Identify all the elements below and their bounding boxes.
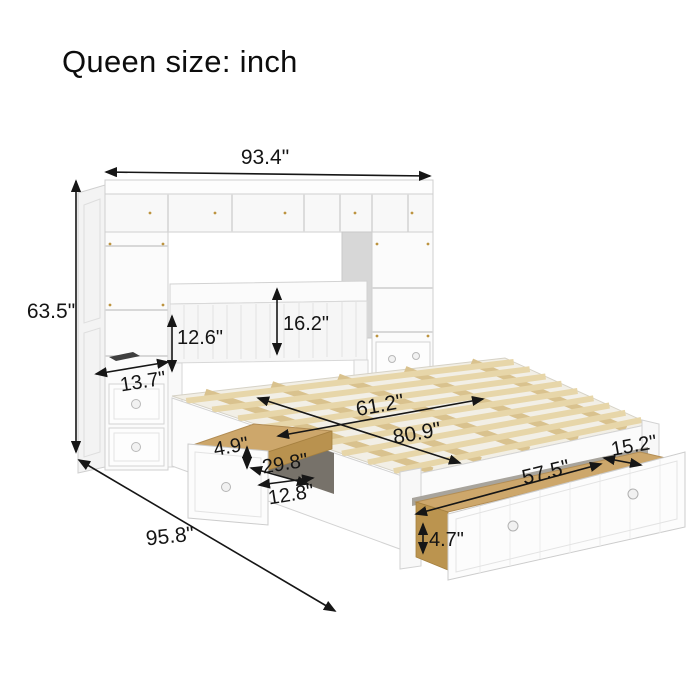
dim-headboard-panel-height-label: 16.2" [283, 313, 329, 335]
dim-overall-width-arrow [106, 172, 430, 176]
drawer-knob [413, 353, 420, 360]
bookcase-top-shelf-row [105, 194, 433, 232]
bookcase-left-side-panel [78, 185, 105, 473]
diagram-svg: 93.4" 63.5" 12.6" 16.2" 13.7" 61.2" [0, 0, 700, 700]
dim-overall-height-label: 63.5" [27, 300, 75, 323]
dim-overall-width: 93.4" [106, 146, 430, 176]
dim-overall-width-label: 93.4" [241, 146, 289, 169]
bookcase-top-board [105, 180, 433, 194]
drawer-knob [628, 489, 638, 499]
drawer-knob [132, 400, 141, 409]
drawer-knob [389, 356, 396, 363]
product-dimension-diagram: Queen size: inch [0, 0, 700, 700]
headboard-top-rail [170, 281, 367, 304]
drawer-knob [222, 483, 231, 492]
dim-overall-height: 63.5" [27, 181, 76, 452]
dim-overall-depth-label: 95.8" [145, 523, 195, 551]
dim-foot-drawer-height-label: 4.7" [429, 529, 464, 551]
dim-headboard-shelf-height-label: 12.6" [177, 327, 223, 349]
dim-foot-drawer-height: 4.7" [423, 524, 464, 553]
drawer-knob [132, 443, 141, 452]
drawer-knob [508, 521, 518, 531]
